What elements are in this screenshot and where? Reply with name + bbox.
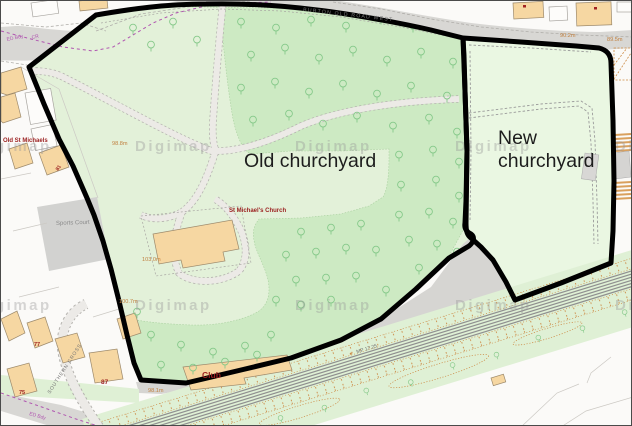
new-churchyard-label-line1: New	[498, 127, 538, 149]
map-frame: MP 17.25	[0, 0, 632, 426]
elevation-label: 100.7m	[119, 299, 138, 305]
elevation-label: 89.5m	[607, 37, 623, 43]
club-label: Club	[202, 370, 221, 380]
old-st-michaels-label: Old St Michaels	[3, 138, 48, 144]
door-mark	[594, 7, 597, 10]
sports-court-label: Sports Court	[56, 220, 90, 227]
old-churchyard-label: Old churchyard	[244, 150, 376, 172]
digimap-watermark: Digimap	[615, 297, 632, 314]
elevation-label: 103.0m	[142, 257, 161, 263]
elevation-label: 98.1m	[148, 388, 164, 394]
door-mark	[523, 5, 526, 8]
st-michaels-church-label: St Michael's Church	[229, 208, 286, 214]
new-churchyard-label-line2: churchyard	[498, 150, 594, 172]
map-canvas: MP 17.25	[1, 1, 632, 426]
digimap-watermark: Digimap	[135, 297, 212, 314]
digimap-watermark: Digimap	[615, 138, 632, 155]
elevation-label: 98.8m	[112, 141, 128, 147]
house-number: 75	[19, 390, 25, 396]
digimap-watermark: Digimap	[295, 297, 372, 314]
elevation-label: 90.2m	[560, 33, 576, 39]
digimap-watermark: Digimap	[1, 297, 52, 314]
house-number: 87	[101, 379, 109, 386]
house-number: 77	[34, 342, 40, 348]
digimap-watermark: Digimap	[135, 138, 212, 155]
